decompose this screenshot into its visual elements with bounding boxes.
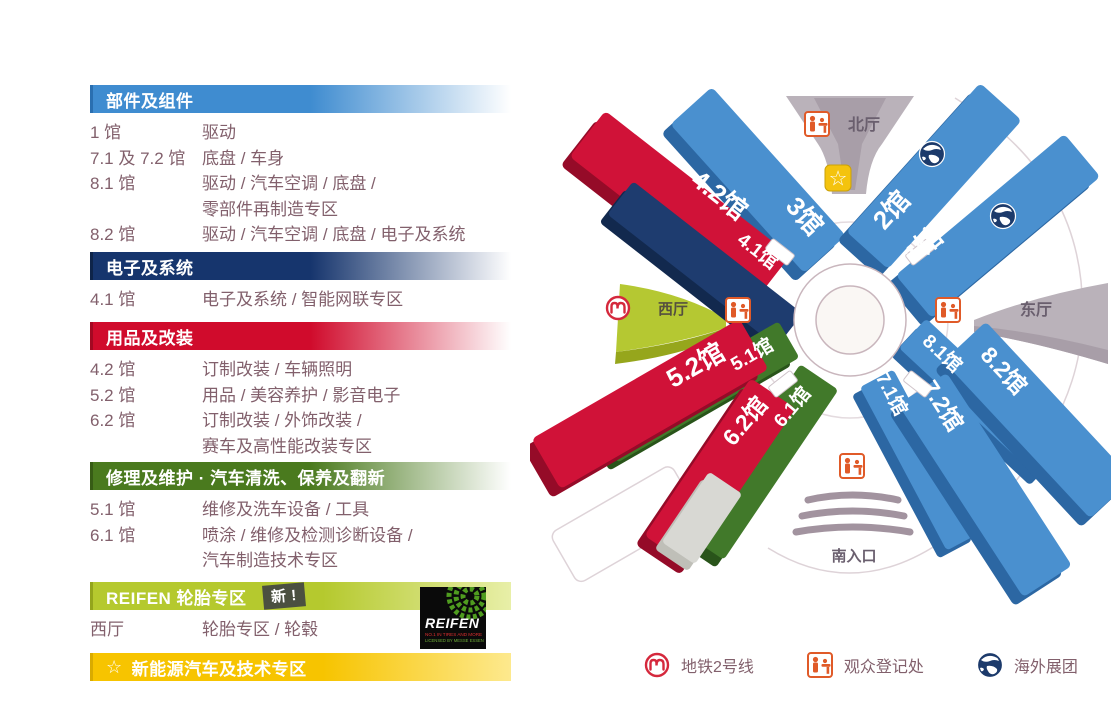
hall-desc: 驱动 / 汽车空调 / 底盘 / xyxy=(202,171,511,197)
legend-row: 1 馆驱动 xyxy=(90,120,511,146)
map-key-label: 海外展团 xyxy=(1014,653,1078,677)
hall-number: 6.1 馆 xyxy=(90,523,202,549)
hall-desc: 电子及系统 / 智能网联专区 xyxy=(202,287,511,313)
south-entrance-stripes xyxy=(796,495,910,532)
reifen-brand-text: REIFEN xyxy=(425,615,480,631)
hall-number: 7.1 及 7.2 馆 xyxy=(90,146,202,172)
east-hall-label: 东厅 xyxy=(1020,300,1052,319)
hall-number: 8.2 馆 xyxy=(90,222,202,248)
legend-row: 6.1 馆喷涂 / 维修及检测诊断设备 /汽车制造技术专区 xyxy=(90,523,511,574)
legend-row: 4.1 馆电子及系统 / 智能网联专区 xyxy=(90,287,511,313)
globe-icon-hall2 xyxy=(920,142,945,167)
section-header-electronics: 电子及系统 xyxy=(90,252,511,280)
registration-icon xyxy=(806,651,834,679)
section-title: 电子及系统 xyxy=(106,254,194,279)
section-title: REIFEN 轮胎专区 xyxy=(106,584,247,609)
section-header-parts: 部件及组件 xyxy=(90,85,511,113)
legend-section-electronics: 电子及系统 4.1 馆电子及系统 / 智能网联专区 xyxy=(90,252,511,313)
section-title: 修理及维护 · 汽车清洗、保养及翻新 xyxy=(106,464,385,489)
hall-number: 4.1 馆 xyxy=(90,287,202,313)
section-header-repair: 修理及维护 · 汽车清洗、保养及翻新 xyxy=(90,462,511,490)
central-ring xyxy=(794,264,906,376)
hall-desc-line2: 零部件再制造专区 xyxy=(202,197,511,223)
globe-icon xyxy=(976,651,1004,679)
hall-number: 5.2 馆 xyxy=(90,383,202,409)
map-key: 地铁2号线 观众登记处 海外展团 xyxy=(643,651,1078,679)
legend-section-repair: 修理及维护 · 汽车清洗、保养及翻新 5.1 馆维修及洗车设备 / 工具 6.1… xyxy=(90,462,511,574)
map-key-item-overseas: 海外展团 xyxy=(976,651,1078,679)
section-title: 部件及组件 xyxy=(106,87,194,112)
legend-row: 7.1 及 7.2 馆底盘 / 车身 xyxy=(90,146,511,172)
hall-number: 8.1 馆 xyxy=(90,171,202,197)
hall-desc: 用品 / 美容养护 / 影音电子 xyxy=(202,383,511,409)
map-key-label: 地铁2号线 xyxy=(681,653,754,677)
globe-icon-hall1 xyxy=(991,204,1016,229)
nev-star-marker-north xyxy=(825,165,851,191)
south-entrance-label: 南入口 xyxy=(831,547,876,565)
section-header-nev: ☆ 新能源汽车及技术专区 xyxy=(90,653,511,681)
hall-desc: 底盘 / 车身 xyxy=(202,146,511,172)
star-icon: ☆ xyxy=(106,657,123,678)
registration-icon-east xyxy=(936,298,960,322)
hall-desc: 订制改装 / 车辆照明 xyxy=(202,357,511,383)
hall-desc: 驱动 xyxy=(202,120,511,146)
section-title: 用品及改装 xyxy=(106,324,194,349)
legend-row: 5.1 馆维修及洗车设备 / 工具 xyxy=(90,497,511,523)
metro-icon-west xyxy=(607,297,629,319)
legend-section-parts: 部件及组件 1 馆驱动 7.1 及 7.2 馆底盘 / 车身 8.1 馆驱动 /… xyxy=(90,85,511,248)
map-key-item-registration: 观众登记处 xyxy=(806,651,924,679)
legend-section-accessories: 用品及改装 4.2 馆订制改装 / 车辆照明 5.2 馆用品 / 美容养护 / … xyxy=(90,322,511,459)
metro-icon xyxy=(643,651,671,679)
legend-section-nev: ☆ 新能源汽车及技术专区 xyxy=(90,653,511,681)
hall-number: 5.1 馆 xyxy=(90,497,202,523)
hall-desc: 喷涂 / 维修及检测诊断设备 / xyxy=(202,523,511,549)
hall-number: 1 馆 xyxy=(90,120,202,146)
hall-desc-line2: 汽车制造技术专区 xyxy=(202,548,511,574)
reifen-logo: REIFEN NO.1 IN TIRES AND MORE LICENSED B… xyxy=(420,587,486,649)
map-key-item-metro: 地铁2号线 xyxy=(643,651,754,679)
section-header-accessories: 用品及改装 xyxy=(90,322,511,350)
reifen-tagline: NO.1 IN TIRES AND MORE xyxy=(425,632,482,637)
reifen-logo-graphic: REIFEN NO.1 IN TIRES AND MORE LICENSED B… xyxy=(420,587,486,649)
new-badge: 新 ! xyxy=(262,582,306,610)
legend-row: 5.2 馆用品 / 美容养护 / 影音电子 xyxy=(90,383,511,409)
venue-map: ☆ xyxy=(530,80,1111,660)
registration-icon-north xyxy=(805,112,829,136)
legend-row: 8.1 馆驱动 / 汽车空调 / 底盘 /零部件再制造专区 xyxy=(90,171,511,222)
hall-number: 4.2 馆 xyxy=(90,357,202,383)
legend-row: 8.2 馆驱动 / 汽车空调 / 底盘 / 电子及系统 xyxy=(90,222,511,248)
hall-desc: 订制改装 / 外饰改装 / xyxy=(202,408,511,434)
map-key-label: 观众登记处 xyxy=(844,653,924,677)
reifen-license-text: LICENSED BY MESSE ESSEN xyxy=(425,638,484,643)
section-title: 新能源汽车及技术专区 xyxy=(132,655,307,680)
hall-desc-line2: 赛车及高性能改装专区 xyxy=(202,434,511,460)
hall-desc: 维修及洗车设备 / 工具 xyxy=(202,497,511,523)
legend-row: 4.2 馆订制改装 / 车辆照明 xyxy=(90,357,511,383)
west-hall-label: 西厅 xyxy=(658,301,688,318)
hall-number: 西厅 xyxy=(90,617,202,643)
north-hall-label: 北厅 xyxy=(848,116,880,134)
hall-desc: 驱动 / 汽车空调 / 底盘 / 电子及系统 xyxy=(202,222,511,248)
legend-row: 6.2 馆订制改装 / 外饰改装 /赛车及高性能改装专区 xyxy=(90,408,511,459)
registration-icon-west xyxy=(726,298,750,322)
registration-icon-south xyxy=(840,454,864,478)
hall-number: 6.2 馆 xyxy=(90,408,202,434)
